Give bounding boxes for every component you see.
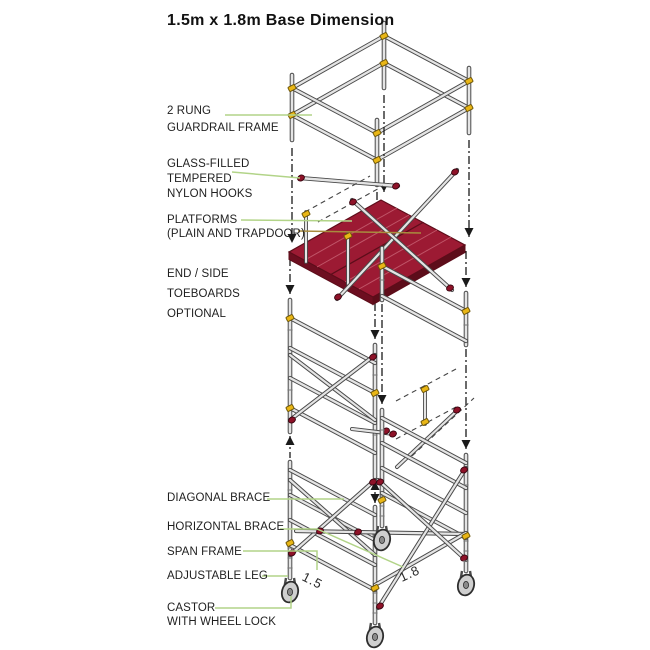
assembly-arrow-down-icon [462,278,471,287]
title-line2: Base Dimension [266,12,395,29]
base-section [286,410,471,623]
label-guardrail-frame: 2 RUNG GUARDRAIL FRAME [167,103,279,137]
label-span-frame: SPAN FRAME [167,545,242,560]
scaffold-diagram-page: 1.5m x 1.8m Base Dimension 2 RUNG GUARDR… [0,0,650,650]
label-adjustable-leg: ADJUSTABLE LEG [167,569,268,584]
scaffold-tower-drawing [0,0,650,650]
castor-wheel [456,571,477,597]
label-platforms: PLATFORMS (PLAIN AND TRAPDOOR) [167,213,305,241]
castor-wheel [365,623,386,649]
clamp-icon [378,496,387,504]
title-line1: 1.5m x 1.8m [167,12,261,29]
page-title: 1.5m x 1.8m Base Dimension [167,13,394,29]
assembly-arrow-down-icon [465,228,474,237]
brace-hook-icon [391,182,400,190]
assembly-arrow-down-icon [371,330,380,339]
clamp-icon [421,385,430,393]
assembly-arrow-down-icon [462,440,471,449]
platform-assembly [289,168,465,305]
castor-wheel [280,578,301,604]
clamp-icon [421,418,430,426]
clamp-icon [371,584,380,592]
guardrail-frame [288,23,474,185]
label-castor: CASTOR WITH WHEEL LOCK [167,601,276,629]
label-diagonal-brace: DIAGONAL BRACE [167,491,270,506]
assembly-arrow-down-icon [286,285,295,294]
assembly-arrow-down-icon [371,494,380,503]
label-nylon-hooks: GLASS-FILLED TEMPERED NYLON HOOKS [167,157,252,202]
label-horizontal-brace: HORIZONTAL BRACE [167,520,284,535]
assembly-arrow-up-icon [286,436,295,445]
assembly-arrow-down-icon [378,395,387,404]
label-toeboards: END / SIDE TOEBOARDS OPTIONAL [167,264,240,324]
